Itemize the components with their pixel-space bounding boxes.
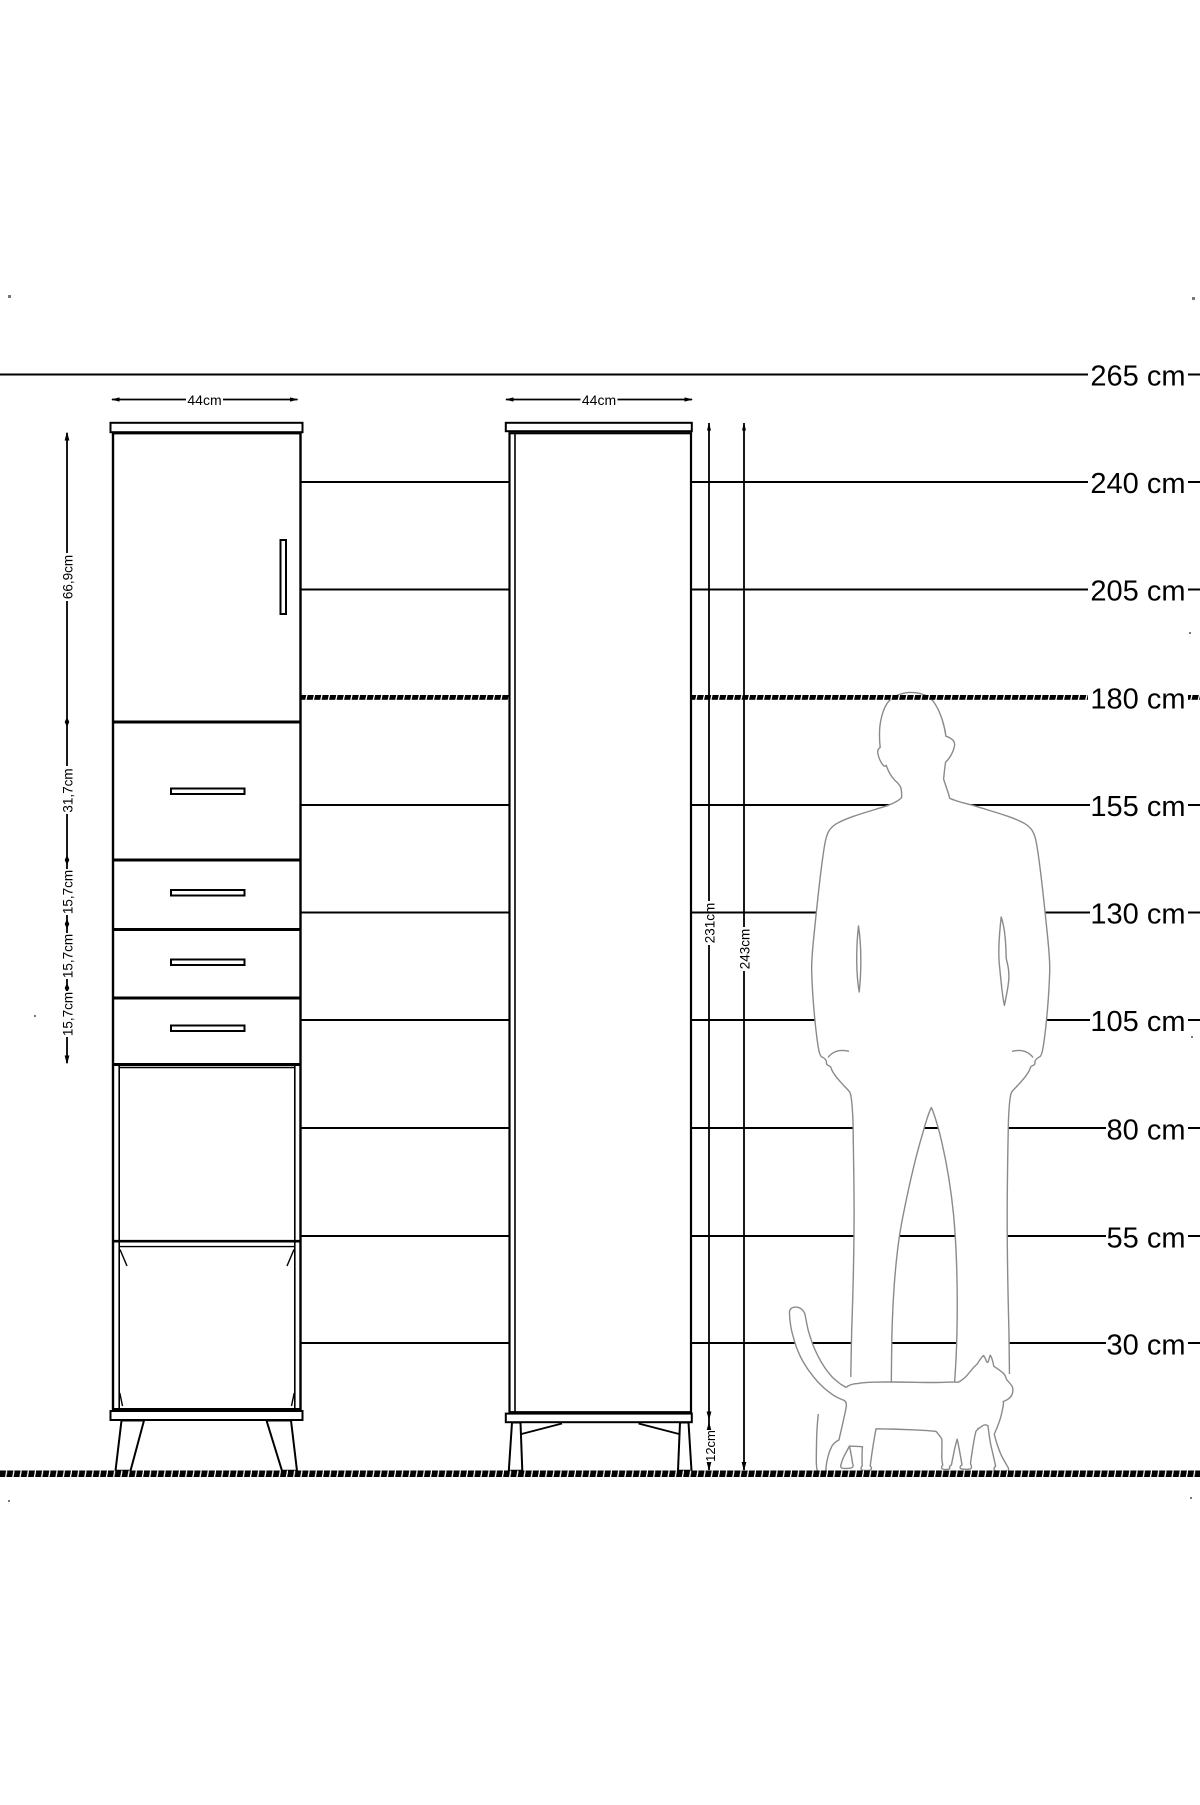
svg-text:105 cm: 105 cm xyxy=(1090,1006,1185,1038)
svg-text:240 cm: 240 cm xyxy=(1090,468,1185,500)
svg-text:80 cm: 80 cm xyxy=(1107,1115,1186,1147)
svg-text:31,7cm: 31,7cm xyxy=(61,768,76,812)
svg-text:265 cm: 265 cm xyxy=(1090,361,1185,393)
svg-text:243cm: 243cm xyxy=(738,929,753,970)
svg-text:155 cm: 155 cm xyxy=(1090,791,1185,823)
svg-text:44cm: 44cm xyxy=(582,392,616,408)
svg-text:15,7cm: 15,7cm xyxy=(61,870,76,914)
svg-text:12cm: 12cm xyxy=(703,1430,718,1462)
svg-text:15,7cm: 15,7cm xyxy=(61,934,76,978)
svg-text:30 cm: 30 cm xyxy=(1107,1330,1186,1362)
svg-text:205 cm: 205 cm xyxy=(1090,576,1185,608)
svg-text:180 cm: 180 cm xyxy=(1090,684,1185,716)
svg-text:130 cm: 130 cm xyxy=(1090,899,1185,931)
svg-text:66,9cm: 66,9cm xyxy=(61,555,76,599)
svg-text:44cm: 44cm xyxy=(187,392,221,408)
svg-text:55 cm: 55 cm xyxy=(1107,1223,1186,1255)
svg-text:231cm: 231cm xyxy=(703,903,718,944)
svg-text:15,7cm: 15,7cm xyxy=(61,992,76,1036)
